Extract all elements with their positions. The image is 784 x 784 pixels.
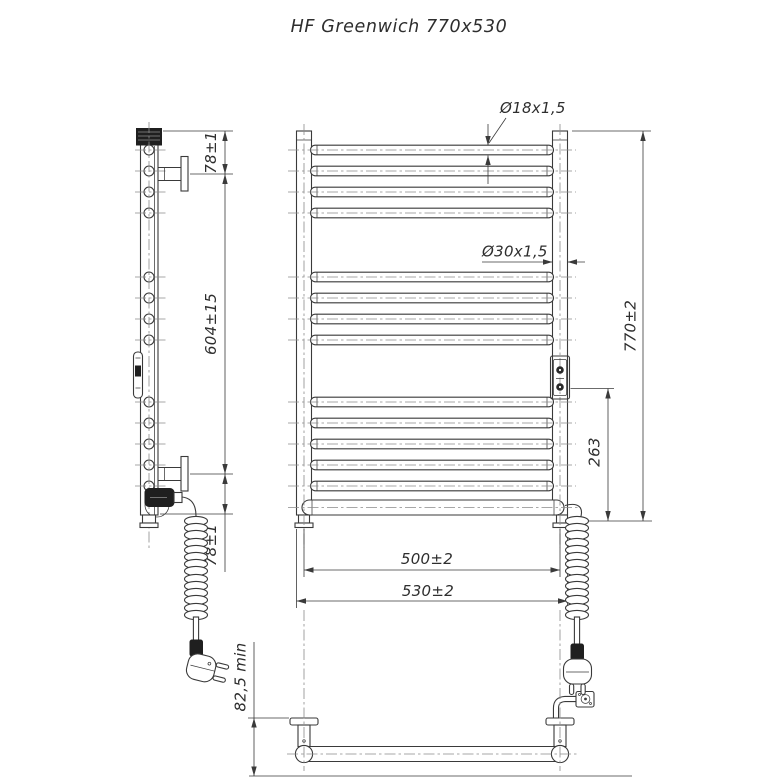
power-plug-front bbox=[564, 659, 592, 695]
dim-mounting-width: 500±2 bbox=[304, 529, 560, 577]
dim-bracket-span: 604±15 bbox=[190, 174, 233, 474]
bottom-collector-tube bbox=[288, 500, 578, 515]
dim-bracket-top-label: 78±1 bbox=[202, 131, 220, 173]
technical-drawing-canvas: HF Greenwich 770x530 bbox=[0, 0, 784, 784]
rung-group-middle bbox=[288, 272, 576, 345]
front-view bbox=[288, 124, 578, 548]
spiral-cable-front bbox=[564, 504, 592, 694]
side-view bbox=[134, 122, 189, 548]
dim-stand-tube: Ø30x1,5 bbox=[481, 243, 585, 265]
cable-ferrule-icon bbox=[571, 644, 584, 660]
regulator-side-profile bbox=[134, 352, 143, 398]
side-foot-bracket bbox=[140, 515, 158, 528]
rung-group-top bbox=[288, 145, 576, 218]
dim-overall-height: 770±2 bbox=[572, 131, 652, 521]
dim-wall-clearance: 82,5 min bbox=[232, 642, 290, 776]
dim-wall-clearance-label: 82,5 min bbox=[232, 643, 250, 712]
power-plug-side bbox=[184, 652, 230, 687]
dim-regulator-height: 263 bbox=[571, 389, 615, 522]
dim-overall-width-label: 530±2 bbox=[402, 582, 454, 600]
rung-group-bottom bbox=[288, 397, 576, 491]
dim-overall-height-label: 770±2 bbox=[622, 300, 640, 352]
dim-bracket-span-label: 604±15 bbox=[202, 293, 220, 355]
dim-overall-width: 530±2 bbox=[297, 529, 568, 608]
dim-regulator-height-label: 263 bbox=[586, 437, 604, 467]
spiral-cable-side bbox=[182, 497, 230, 687]
cable-gland-elbow bbox=[556, 692, 594, 718]
dim-rung-tube-label: Ø18x1,5 bbox=[499, 99, 566, 117]
drawing-sheet: HF Greenwich 770x530 bbox=[0, 0, 784, 784]
top-wall-bracket bbox=[158, 157, 188, 192]
drawing-title: HF Greenwich 770x530 bbox=[291, 17, 508, 37]
dim-stand-tube-label: Ø30x1,5 bbox=[481, 243, 548, 261]
bottom-view-tube bbox=[287, 745, 577, 762]
dim-mounting-width-label: 500±2 bbox=[401, 550, 453, 568]
